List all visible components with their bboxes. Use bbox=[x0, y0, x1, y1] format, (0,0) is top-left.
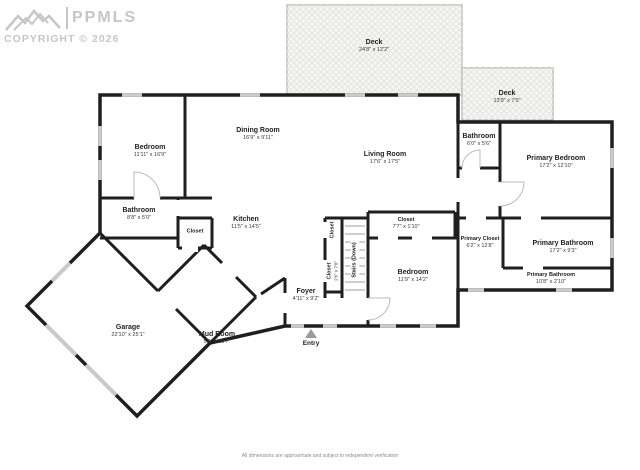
mountains-icon bbox=[4, 4, 62, 32]
watermark-copyright: COPYRIGHT © 2026 bbox=[4, 33, 137, 45]
entry-arrow-icon bbox=[305, 329, 317, 338]
floorplan-drawing bbox=[0, 0, 640, 470]
house-interior bbox=[27, 95, 612, 416]
disclaimer-text: All dimensions are approximate and subje… bbox=[0, 453, 640, 459]
floorplan-page: Deck24'8" x 12'2" Deck13'9" x 7'0" Bedro… bbox=[0, 0, 640, 470]
watermark-divider bbox=[66, 7, 68, 29]
watermark: PPMLS COPYRIGHT © 2026 bbox=[4, 4, 137, 45]
entry-label: Entry bbox=[303, 340, 320, 347]
watermark-brand: PPMLS bbox=[72, 9, 137, 27]
